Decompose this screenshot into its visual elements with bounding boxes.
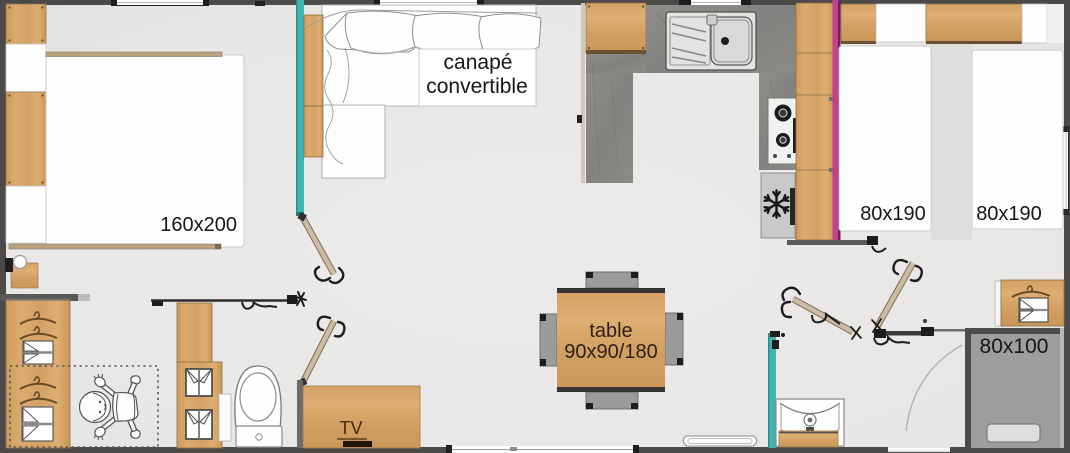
svg-text:160x200: 160x200 bbox=[160, 214, 237, 236]
svg-text:table: table bbox=[589, 320, 632, 342]
svg-text:TV: TV bbox=[339, 418, 362, 438]
svg-text:convertible: convertible bbox=[426, 75, 528, 98]
svg-text:canapé: canapé bbox=[444, 51, 513, 74]
svg-text:80x100: 80x100 bbox=[980, 335, 1049, 358]
svg-text:80x190: 80x190 bbox=[860, 203, 926, 225]
svg-text:90x90/180: 90x90/180 bbox=[564, 341, 657, 363]
svg-text:80x190: 80x190 bbox=[976, 203, 1042, 225]
